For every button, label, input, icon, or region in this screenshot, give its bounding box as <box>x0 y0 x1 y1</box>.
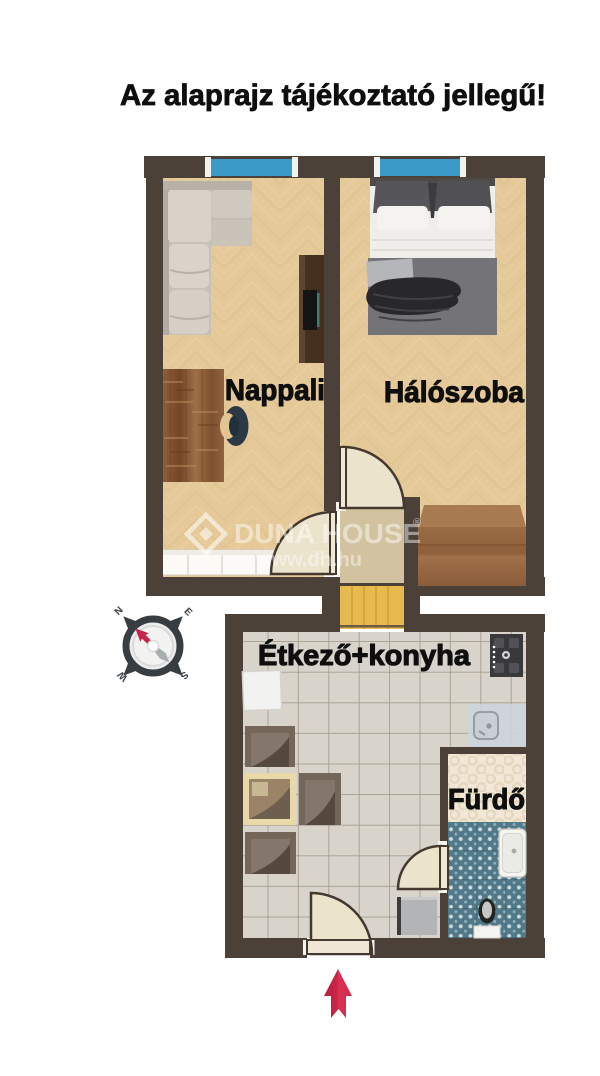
svg-text:Hálószoba: Hálószoba <box>384 376 524 409</box>
svg-text:Az alaprajz tájékoztató jelleg: Az alaprajz tájékoztató jellegű! <box>120 79 546 112</box>
svg-text:®: ® <box>413 517 421 529</box>
svg-text:www.dh.hu: www.dh.hu <box>255 549 362 571</box>
svg-text:DUNA HOUSE: DUNA HOUSE <box>234 518 421 549</box>
svg-text:Nappali: Nappali <box>225 374 325 407</box>
svg-text:Étkező+konyha: Étkező+konyha <box>258 638 471 672</box>
svg-text:Fürdő: Fürdő <box>448 784 525 816</box>
